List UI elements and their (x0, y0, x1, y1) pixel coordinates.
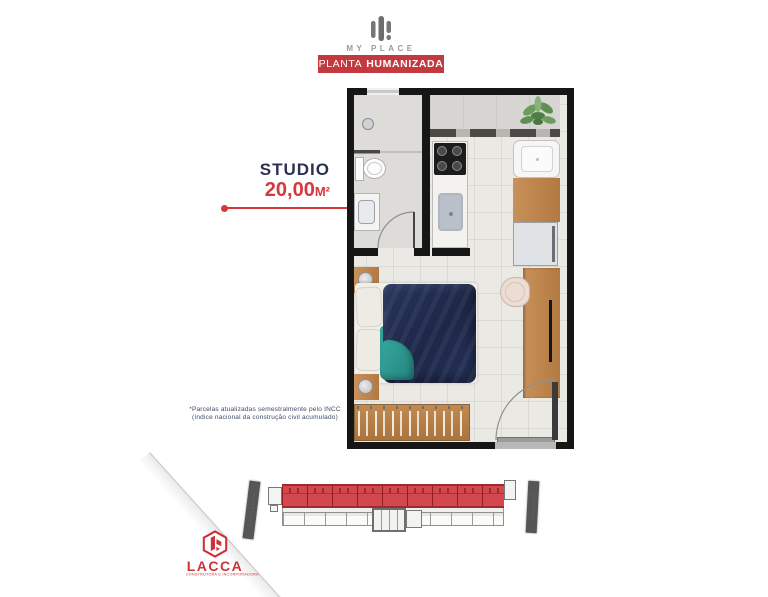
lacca-icon (201, 530, 229, 558)
laundry-tub-basin (521, 146, 553, 172)
kitchen-sink (438, 193, 463, 231)
bathroom-window (367, 88, 399, 95)
keyplan-right-wing (504, 480, 516, 500)
keyplan-highlighted-units (282, 484, 504, 508)
bathroom-sink (358, 200, 375, 224)
washing-machine (513, 222, 558, 266)
bathroom-wall-segment (354, 248, 378, 256)
footnote-line2: (índice nacional da construção civil acu… (160, 414, 370, 422)
laundry-counter (513, 178, 560, 222)
builder-name: LACCA (183, 558, 247, 574)
banner-prefix: PLANTA (319, 58, 363, 70)
pillow (355, 286, 383, 327)
lamp-icon (358, 379, 373, 394)
street-label-right: · · · · · · · · (526, 481, 540, 534)
cooktop (434, 143, 466, 175)
footnote-line1: *Parcelas atualizadas semestralmente pel… (160, 406, 370, 414)
keyplan-left-wing (268, 487, 282, 505)
floor-plan (347, 88, 574, 449)
unit-area-value: 20,00 (265, 179, 315, 201)
my-place-icon (370, 15, 392, 45)
wardrobe (354, 404, 470, 441)
street-label-left: · · · · · · · · · · (243, 481, 261, 540)
bathroom-partition-wall (422, 95, 430, 248)
builder-tagline: CONSTRUTORA E INCORPORADORA (186, 573, 244, 577)
pillow (355, 329, 382, 372)
chair (500, 277, 530, 307)
builder-tagline-wrap: CONSTRUTORA E INCORPORADORA (168, 573, 262, 579)
shower-icon (362, 118, 374, 130)
building-keyplan (262, 476, 518, 538)
unit-area: 20,00M² (160, 180, 330, 202)
tv (549, 300, 552, 362)
entry-door-leaf (552, 382, 558, 440)
footnote: *Parcelas atualizadas semestralmente pel… (160, 406, 370, 422)
unit-area-unit: M² (315, 184, 330, 199)
brand-name: MY PLACE (330, 44, 432, 53)
plant-icon (518, 94, 558, 134)
keyplan-core-annex (406, 510, 422, 528)
counter-end-wall (432, 248, 470, 256)
keyplan-core (372, 508, 406, 532)
callout-line (227, 207, 347, 209)
bathroom-wall-segment (414, 248, 430, 256)
banner-emphasis: HUMANIZADA (366, 58, 443, 70)
entry-door-opening (495, 442, 556, 449)
keyplan-left-wing-ext (270, 505, 278, 512)
flyer-page: MY PLACE PLANTA HUMANIZADA STUDIO 20,00M… (0, 0, 768, 597)
toilet-bowl (363, 158, 386, 179)
unit-type-label: STUDIO (160, 160, 330, 180)
plan-type-banner: PLANTA HUMANIZADA (318, 55, 444, 73)
